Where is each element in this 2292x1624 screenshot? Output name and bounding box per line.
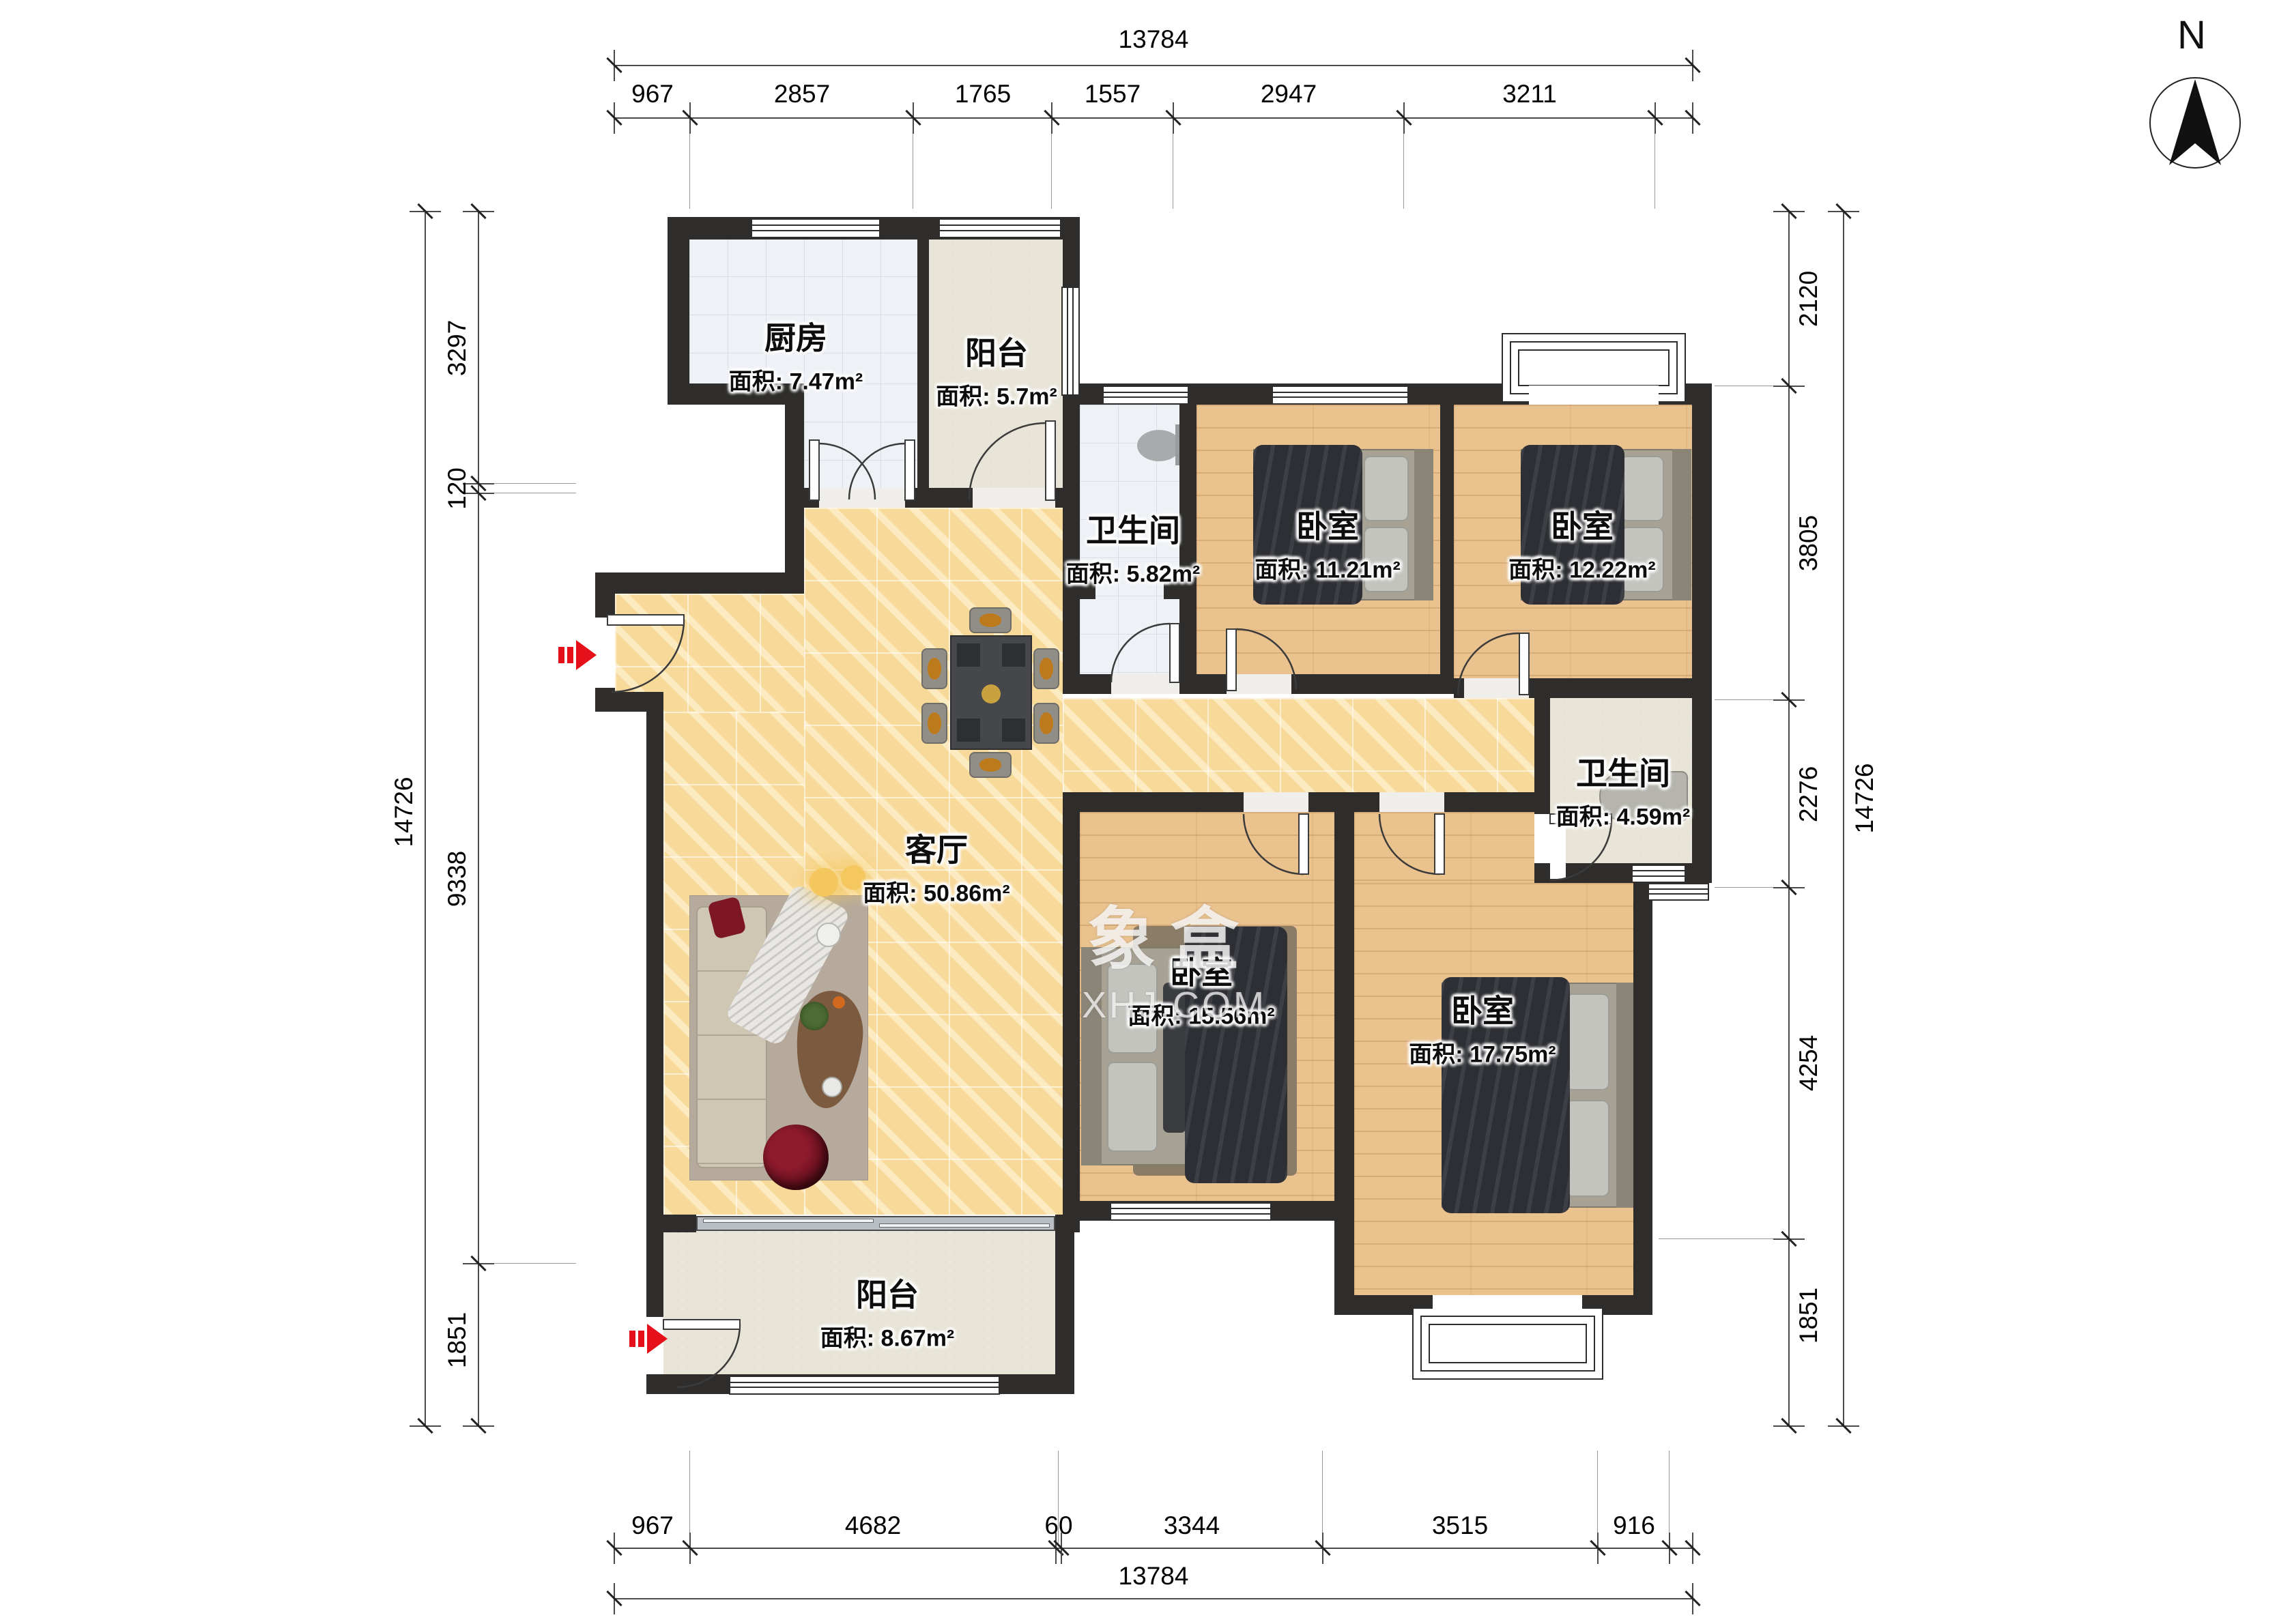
watermark-brand: 象盒	[1082, 884, 1259, 983]
room-label-balcony-bottom: 阳台 面积: 8.67m²	[820, 1271, 955, 1353]
entry-arrow-icon	[558, 640, 597, 670]
room-name: 阳台	[936, 329, 1057, 374]
room-label-bedroom1: 卧室 面积: 11.21m²	[1255, 502, 1401, 585]
room-name: 阳台	[820, 1271, 955, 1316]
room-area: 面积: 5.82m²	[1066, 555, 1201, 589]
room-area: 面积: 8.67m²	[820, 1320, 955, 1353]
floorplan-page: { "compass": { "label": "N" }, "watermar…	[0, 0, 2292, 1624]
room-name: 客厅	[863, 826, 1009, 871]
room-label-bathroom2: 卫生间 面积: 4.59m²	[1556, 749, 1691, 832]
room-area: 面积: 7.47m²	[729, 363, 863, 396]
room-area: 面积: 17.75m²	[1409, 1036, 1556, 1069]
room-label-living: 客厅 面积: 50.86m²	[863, 826, 1009, 908]
room-label-kitchen: 厨房 面积: 7.47m²	[729, 314, 863, 396]
room-name: 卧室	[1409, 987, 1556, 1032]
room-label-balcony-top: 阳台 面积: 5.7m²	[936, 329, 1057, 411]
room-name: 卧室	[1508, 502, 1655, 547]
room-area: 面积: 5.7m²	[936, 378, 1057, 411]
room-name: 卫生间	[1066, 506, 1201, 551]
watermark-domain: XHJ.COM	[1082, 984, 1259, 1026]
room-label-bedroom4: 卧室 面积: 17.75m²	[1409, 987, 1556, 1069]
room-area: 面积: 11.21m²	[1255, 551, 1401, 585]
room-label-bathroom1: 卫生间 面积: 5.82m²	[1066, 506, 1201, 589]
room-name: 厨房	[729, 314, 863, 359]
room-area: 面积: 4.59m²	[1556, 798, 1691, 832]
room-name: 卧室	[1255, 502, 1401, 547]
room-area: 面积: 12.22m²	[1508, 551, 1655, 585]
watermark: 象盒 XHJ.COM	[1082, 884, 1259, 1026]
room-name: 卫生间	[1556, 749, 1691, 794]
entry-arrow-icon	[629, 1324, 668, 1354]
door-swing-layer	[0, 0, 2292, 1624]
room-label-bedroom2: 卧室 面积: 12.22m²	[1508, 502, 1655, 585]
room-area: 面积: 50.86m²	[863, 875, 1009, 908]
